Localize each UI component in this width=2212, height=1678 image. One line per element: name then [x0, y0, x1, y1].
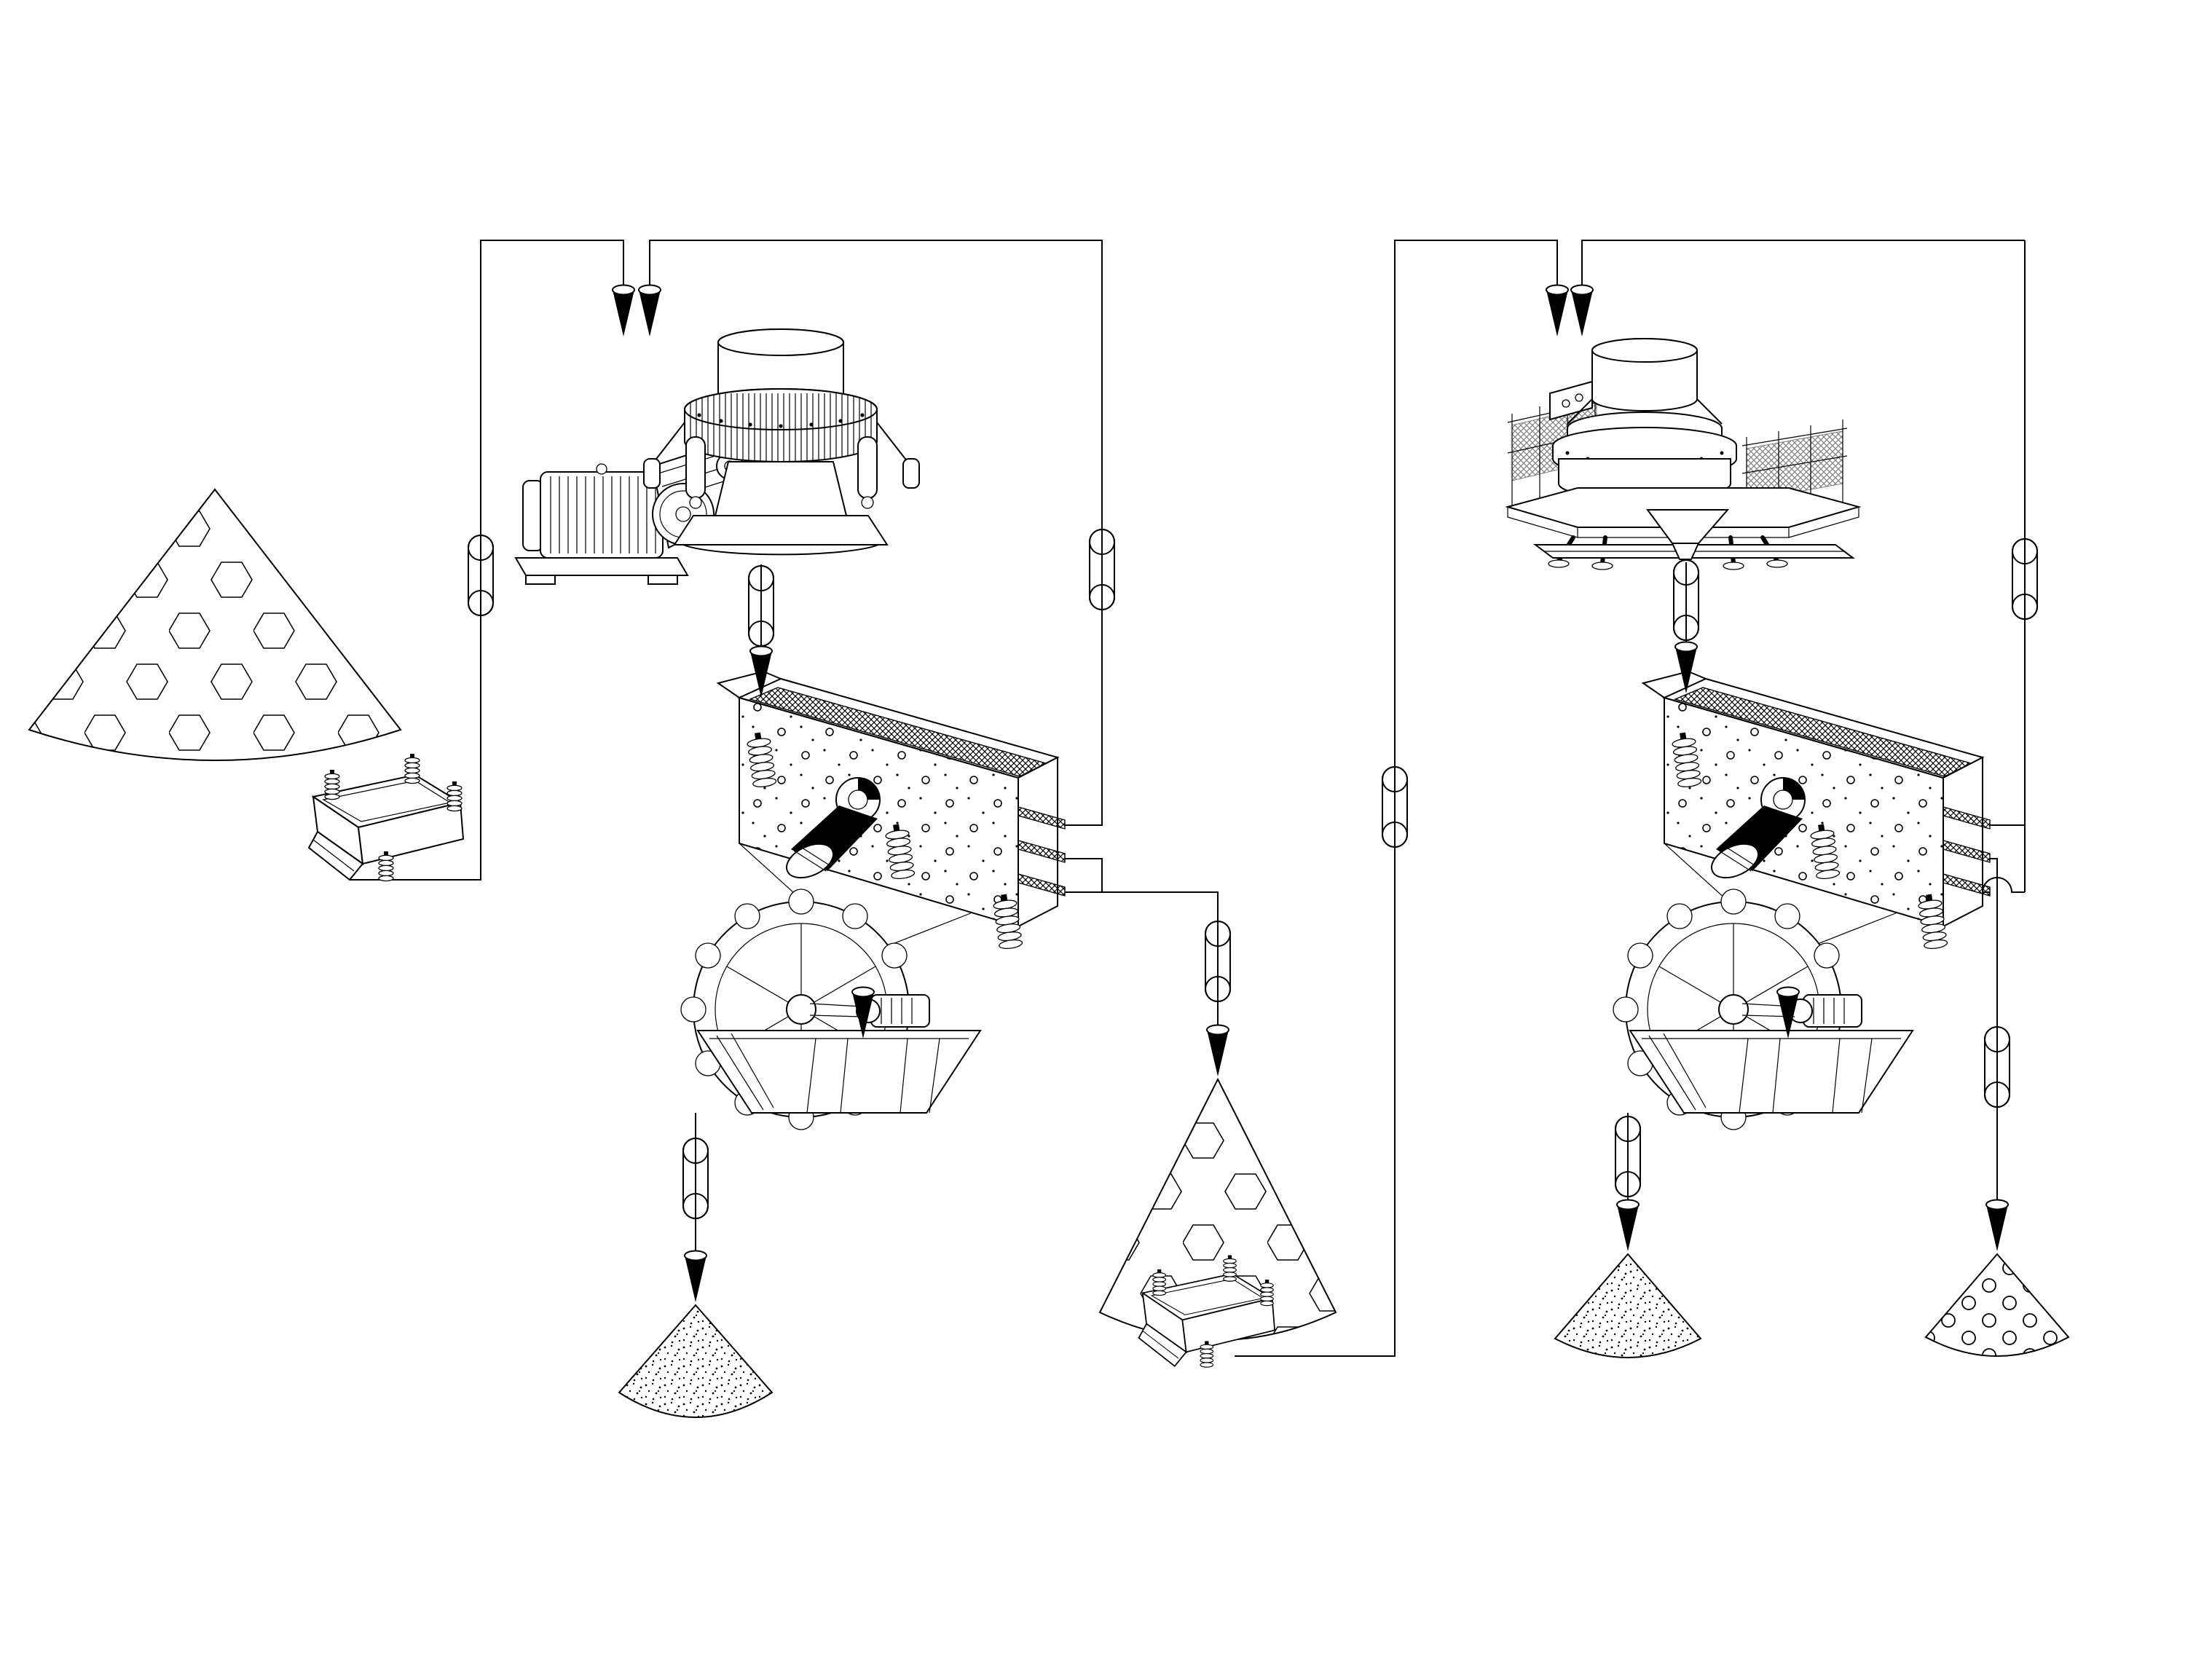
- flow-feeder2-to-vsi: [1235, 240, 1557, 1356]
- raw-material-stockpile: [29, 489, 401, 760]
- flow-screen1-to-intermediate-stockpile: [1065, 892, 1218, 1025]
- aggregate-stockpile: [1926, 1254, 2069, 1356]
- flow-diagram-svg: [0, 0, 2212, 1678]
- flow-arrow-icon: [639, 285, 661, 337]
- flow-arrow-icon: [1986, 1200, 2008, 1252]
- flow-arrow-icon: [1617, 1200, 1639, 1252]
- washed-sand-stockpile-1: [619, 1305, 772, 1417]
- cone-crusher: [516, 329, 919, 584]
- flow-arrow-icon: [685, 1251, 706, 1303]
- flow-arrow-icon: [1571, 285, 1593, 337]
- flow-diagram-canvas: [0, 0, 2212, 1678]
- sand-washer-1: [681, 889, 980, 1130]
- flow-screen1-middeck-join: [1065, 859, 1102, 892]
- vibrating-feeder-1: [309, 754, 463, 881]
- sand-washer-2: [1613, 889, 1913, 1130]
- washed-sand-stockpile-2: [1555, 1254, 1701, 1358]
- flow-arrow-icon: [1207, 1025, 1229, 1077]
- vsi-crusher: [1508, 339, 1859, 570]
- flow-arrow-icon: [1546, 285, 1568, 337]
- flow-arrow-icon: [613, 285, 634, 337]
- flow-screen2-middeck-to-aggregate-stockpile: [1990, 859, 1997, 1200]
